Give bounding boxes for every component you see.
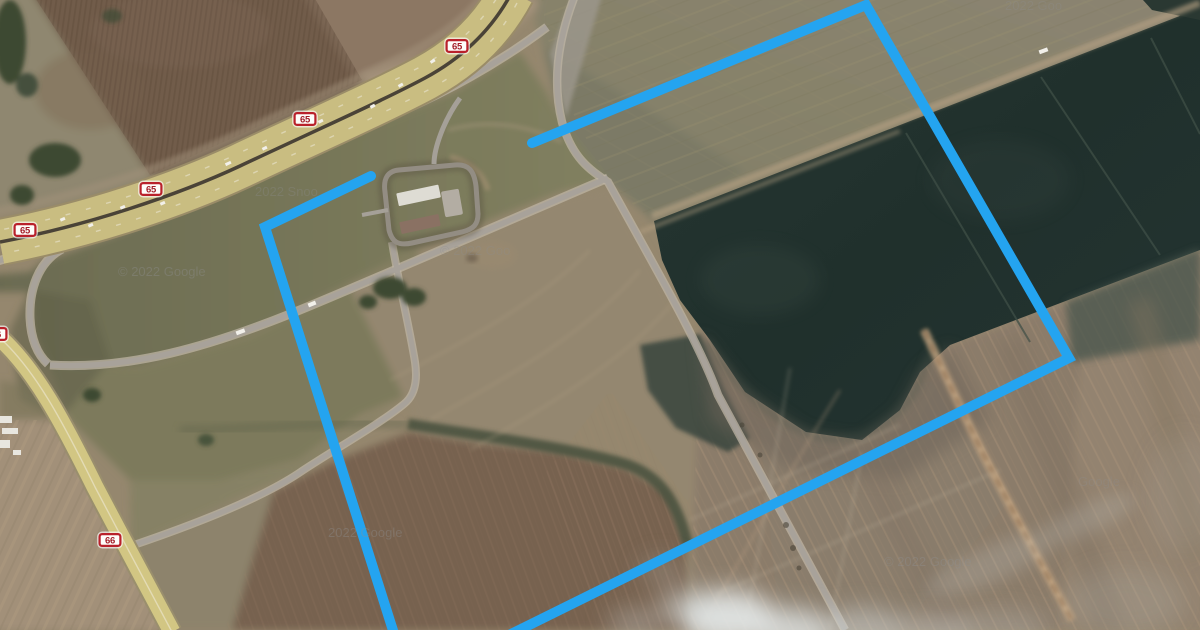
svg-text:Google: Google xyxy=(1078,474,1120,489)
svg-text:66: 66 xyxy=(0,329,1,340)
svg-text:© 2022 Google: © 2022 Google xyxy=(118,264,206,279)
svg-text:2022 Snoo: 2022 Snoo xyxy=(255,184,318,199)
svg-text:65: 65 xyxy=(146,184,157,195)
svg-text:© 2022 Goo: © 2022 Goo xyxy=(440,243,510,258)
svg-text:65: 65 xyxy=(300,114,311,125)
svg-text:© 2022 Google: © 2022 Google xyxy=(884,554,972,569)
svg-text:2022 Goo: 2022 Goo xyxy=(1005,0,1062,13)
svg-text:65: 65 xyxy=(452,41,463,52)
svg-text:2022 Google: 2022 Google xyxy=(328,525,402,540)
svg-text:65: 65 xyxy=(20,225,31,236)
svg-text:66: 66 xyxy=(105,535,115,546)
